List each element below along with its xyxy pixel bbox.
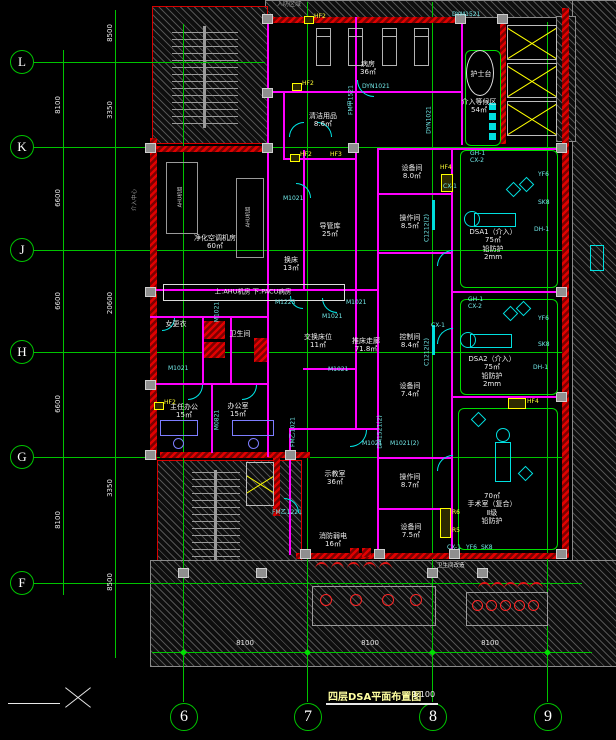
- desk: [232, 420, 274, 436]
- wall-segment: [451, 148, 453, 555]
- door-label: C1212(2): [425, 214, 432, 242]
- wall-segment: [362, 548, 371, 557]
- dimension-line: [63, 50, 64, 595]
- grid-bubble-G: G: [10, 445, 34, 469]
- dimension-label: 6600: [54, 292, 62, 310]
- grid-label: 7: [304, 708, 312, 726]
- wall-segment: [211, 383, 213, 453]
- equipment-tag: HF4: [440, 165, 452, 172]
- fixture: [320, 594, 332, 606]
- grid-bubble-J: J: [10, 238, 34, 262]
- grid-label: F: [18, 575, 25, 591]
- wall-segment: [453, 291, 562, 293]
- room-label-equipment: 设备间8.0㎡: [402, 164, 423, 181]
- door-label: C1212(2): [425, 338, 432, 366]
- grid-label: G: [17, 449, 26, 465]
- room-label-nurse-station: 护士台: [471, 70, 492, 78]
- column: [145, 143, 156, 153]
- fixture: [528, 600, 539, 611]
- desk: [160, 420, 198, 436]
- room-label-toilet: 卫生间: [230, 330, 251, 338]
- grid-bubble-6: 6: [170, 703, 198, 731]
- renovation-note: 卫生间改造: [437, 563, 465, 569]
- door-label: DM1521(2): [378, 415, 385, 449]
- grid-line-6: [183, 24, 184, 702]
- room-label-demo-room: 示教室36㎡: [325, 470, 346, 487]
- door-label: M1021: [215, 302, 222, 322]
- dsa-table: [474, 213, 516, 227]
- room-label-elv-room: 消防弱电16㎡: [319, 532, 347, 549]
- door-label: M1021: [346, 300, 366, 307]
- room-label-equipment3: 设备间7.5㎡: [401, 523, 422, 540]
- wall-segment: [562, 8, 569, 558]
- observation-window: [432, 200, 435, 230]
- column: [497, 14, 508, 24]
- equipment-code: CX-2: [470, 158, 484, 165]
- door-label: M1021: [328, 367, 348, 374]
- room-label-women-change: 女更衣: [166, 320, 187, 328]
- bed: [382, 28, 397, 66]
- fixture: [410, 594, 422, 606]
- waiting-chair: [489, 123, 496, 130]
- column: [262, 14, 273, 24]
- fixture: [504, 582, 517, 597]
- title-underline: [326, 703, 438, 705]
- level-note: 上:AHU机房 下:PACU病房: [215, 288, 292, 295]
- toilet-stall: [203, 342, 225, 358]
- room-label-catheter-store: 导管库25㎡: [320, 222, 341, 239]
- grid-label: K: [17, 139, 26, 155]
- column: [145, 287, 156, 297]
- room-label-ward: 病房36㎡: [360, 60, 376, 77]
- door-arc: [188, 385, 203, 400]
- hatched-area: [572, 0, 616, 564]
- door-arc: [242, 385, 257, 400]
- wall-segment: [377, 148, 453, 150]
- column: [300, 549, 311, 559]
- waiting-chair: [489, 133, 496, 140]
- or-light: [496, 428, 510, 442]
- fixture: [379, 562, 392, 577]
- equipment-code: DH-1: [533, 365, 548, 372]
- wall-segment: [355, 290, 357, 430]
- column: [556, 392, 567, 402]
- door-arc: [437, 328, 453, 344]
- grid-label: H: [17, 344, 26, 360]
- door-label: DYN1021: [427, 106, 434, 134]
- toilet-stall: [203, 321, 225, 339]
- bed: [316, 28, 331, 66]
- grid-line-L: [34, 62, 265, 63]
- equipment-tag: HF2: [314, 14, 326, 21]
- ahu-label: AHU机组: [246, 207, 252, 228]
- grid-bubble-K: K: [10, 135, 34, 159]
- column: [285, 450, 296, 460]
- dimension-label: 8100: [54, 511, 62, 529]
- room-label-ahu-room: 净化空调机房60㎡: [194, 234, 236, 251]
- column: [374, 549, 385, 559]
- dsa-table: [470, 334, 512, 348]
- door-label: FM乙1021: [291, 417, 298, 447]
- wall-segment: [377, 193, 453, 195]
- equipment-tag: HF2: [302, 81, 314, 88]
- door-label: M1021: [322, 314, 342, 321]
- column: [145, 450, 156, 460]
- dimension-label: 3350: [106, 479, 114, 497]
- grid-bubble-9: 9: [534, 703, 562, 731]
- elevator-shaft: [507, 25, 557, 60]
- equipment-code: CX-1: [447, 545, 461, 552]
- axis-line: [8, 703, 60, 704]
- dimension-label: 8500: [106, 24, 114, 42]
- bed: [414, 28, 429, 66]
- equipment-code: SK8: [481, 545, 493, 552]
- equipment-tag: HF2: [300, 152, 312, 159]
- column: [262, 143, 273, 153]
- room-label-or: 70㎡手术室（复合）Ⅱ级铅防护: [468, 492, 517, 526]
- equipment-code: YF6: [466, 545, 477, 552]
- dimension-label: 8100: [236, 639, 254, 647]
- dimension-label: 6600: [54, 189, 62, 207]
- wall-segment: [230, 316, 232, 383]
- room-label-bed-exchange: 换床13㎡: [283, 256, 299, 273]
- floor-plan-canvas[interactable]: L K J H G F 6 7 8 9 8100 6600 6600 6600 …: [0, 0, 616, 740]
- fixture: [331, 562, 344, 577]
- c-arm: [464, 211, 480, 227]
- tag-box: [154, 402, 164, 410]
- column: [145, 380, 156, 390]
- fixture: [347, 562, 360, 577]
- fixture: [382, 594, 394, 606]
- dimension-label: 20600: [106, 292, 114, 314]
- equipment-code: YF6: [538, 316, 549, 323]
- grid-label: 8: [429, 708, 437, 726]
- dimension-label: 3350: [106, 101, 114, 119]
- fixture: [500, 600, 511, 611]
- dimension-label: 8100: [54, 96, 62, 114]
- dimension-label: 8500: [106, 573, 114, 591]
- room-label-operation2: 操作间8.7㎡: [400, 473, 421, 490]
- toilet-stall: [254, 338, 267, 362]
- grid-bubble-H: H: [10, 340, 34, 364]
- door-label: M0821: [215, 410, 222, 430]
- room-label-exchange-bed: 交换床位11㎡: [304, 333, 332, 350]
- equipment-code: CX-1: [443, 184, 457, 191]
- grid-bubble-7: 7: [294, 703, 322, 731]
- fixture: [491, 582, 504, 597]
- wall-segment: [265, 17, 461, 23]
- dimension-label: 8100: [481, 639, 499, 647]
- wall-segment: [461, 17, 463, 145]
- grid-label: L: [18, 54, 26, 70]
- door-label: FM甲1521: [349, 85, 356, 115]
- drawing-scale: 1:100: [412, 690, 435, 699]
- equipment-code: SK8: [538, 200, 550, 207]
- equipment-code: CX-1: [431, 323, 445, 330]
- wall-segment: [267, 17, 269, 457]
- wall-segment: [202, 316, 204, 383]
- zone-note: 人防区域: [277, 2, 301, 9]
- equipment-tag: R5: [452, 528, 460, 535]
- door-label: FM乙1221: [272, 510, 302, 517]
- tag-box: [290, 154, 300, 162]
- wall-segment: [273, 458, 280, 516]
- wall-segment: [350, 548, 359, 557]
- grid-label: 6: [180, 708, 188, 726]
- column: [556, 143, 567, 153]
- chair: [248, 438, 259, 449]
- room-label-dsa1: DSA1（介入）75㎡铅防护2mm: [469, 228, 516, 262]
- tag-box: [304, 16, 314, 24]
- duct-shaft: [590, 245, 604, 271]
- equipment-code: DH-1: [534, 227, 549, 234]
- column: [262, 88, 273, 98]
- fixture: [472, 600, 483, 611]
- grid-line-7: [307, 2, 308, 702]
- equipment-tag: HF3: [330, 152, 342, 159]
- door-arc: [289, 122, 304, 137]
- door-label: M1021: [283, 196, 303, 203]
- equipment-code: SK8: [538, 342, 550, 349]
- column: [477, 568, 488, 578]
- elevator-shaft: [507, 63, 557, 98]
- equipment-tag: HF4: [527, 399, 539, 406]
- column: [348, 143, 359, 153]
- stair-beam: [203, 26, 206, 128]
- elevator-shaft: [246, 462, 274, 506]
- fixture: [486, 600, 497, 611]
- room-label-corridor: 推床走廊71.8㎡: [352, 337, 380, 354]
- ahu-label: AHU机组: [178, 187, 184, 208]
- dimension-label: 8100: [361, 639, 379, 647]
- wall-segment: [150, 138, 157, 460]
- column: [556, 287, 567, 297]
- room-label-operation: 操作间8.5㎡: [400, 214, 421, 231]
- grid-label: J: [19, 242, 24, 258]
- grid-bubble-F: F: [10, 571, 34, 595]
- chair: [173, 438, 184, 449]
- stair-beam: [214, 470, 217, 560]
- tag-box: [440, 508, 451, 538]
- elevator-shaft: [507, 101, 557, 136]
- column: [427, 568, 438, 578]
- column: [178, 568, 189, 578]
- grid-label: 9: [544, 708, 552, 726]
- wall-segment: [296, 553, 564, 559]
- drawing-title: 四层DSA平面布置图: [328, 688, 421, 703]
- department-note: 介入中心: [132, 189, 138, 211]
- wall-segment: [289, 428, 291, 555]
- dimension-line: [115, 10, 116, 658]
- room-label-equipment2: 设备间7.4㎡: [400, 382, 421, 399]
- equipment-code: CX-2: [468, 304, 482, 311]
- wall-segment: [157, 146, 269, 152]
- fixture: [530, 582, 543, 597]
- grid-bubble-L: L: [10, 50, 34, 74]
- door-label: DYM1521: [452, 12, 480, 19]
- grid-bubble-8: 8: [419, 703, 447, 731]
- equipment-tag: HF2: [164, 400, 176, 407]
- door-label: M1223: [275, 300, 295, 307]
- fixture: [363, 562, 376, 577]
- tag-box: [292, 83, 302, 91]
- door-label: M1021(2): [390, 441, 419, 448]
- room-label-waiting: 介入等候区54㎡: [462, 98, 497, 115]
- fixture: [350, 594, 362, 606]
- or-table: [495, 442, 511, 482]
- column: [556, 549, 567, 559]
- c-arm: [460, 332, 476, 348]
- column: [256, 568, 267, 578]
- wall-segment: [283, 93, 285, 158]
- door-label: M1021: [168, 366, 188, 373]
- equipment-tag: R6: [452, 510, 460, 517]
- dimension-label: 6600: [54, 395, 62, 413]
- fixture: [514, 600, 525, 611]
- fixture: [517, 582, 530, 597]
- room-label-dsa2: DSA2（介入）75㎡铅防护2mm: [468, 355, 515, 389]
- door-label: DYN1021: [362, 84, 390, 91]
- equipment-code: YF6: [538, 172, 549, 179]
- room-label-office: 办公室15㎡: [228, 402, 249, 419]
- tag-box: [508, 398, 526, 409]
- dimension-line: [152, 652, 592, 653]
- room-label-cleaning: 清洁用品8.6㎡: [309, 112, 337, 129]
- room-label-control: 控制间8.4㎡: [400, 333, 421, 350]
- wall-segment: [303, 150, 305, 290]
- fixture: [315, 562, 328, 577]
- fixture: [478, 582, 491, 597]
- renovation-outline: [312, 586, 436, 626]
